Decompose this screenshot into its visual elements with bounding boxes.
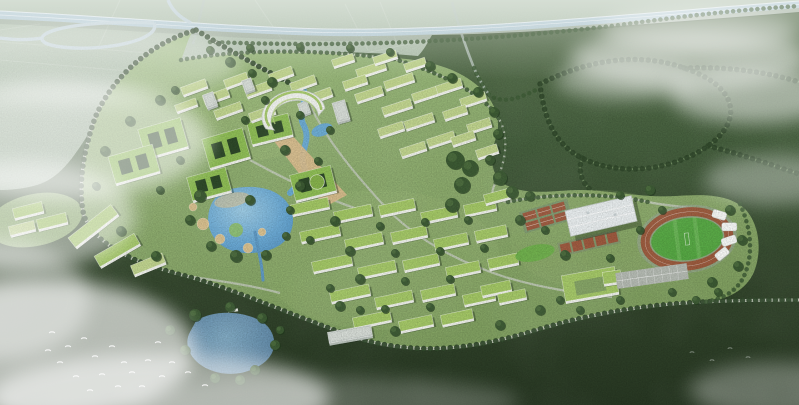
- rendering-canvas: [0, 0, 799, 405]
- atmospheric-haze: [0, 0, 799, 80]
- aerial-campus-rendering: [0, 0, 799, 405]
